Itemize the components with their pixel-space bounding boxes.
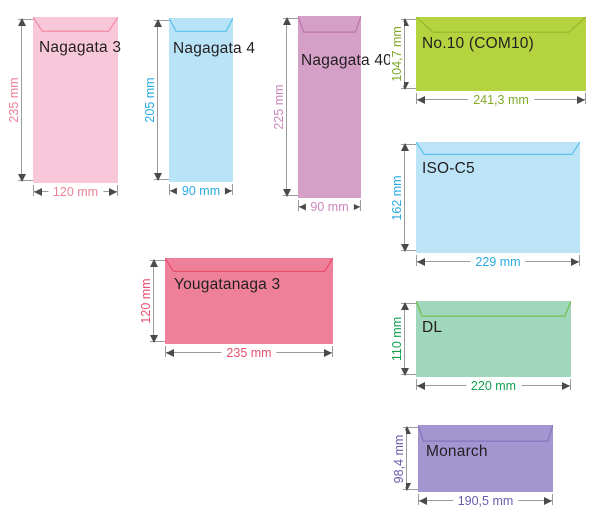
envelope-figure-nagagata-40: 225 mm Nagagata 40 90 mm (272, 16, 361, 216)
dimension-line (406, 428, 407, 489)
dimension-tick (232, 184, 233, 195)
height-dimension: 225 mm (272, 16, 298, 198)
width-dimension: 229 mm (416, 253, 580, 271)
arrow-up-icon (154, 19, 162, 27)
dimension-tick (332, 346, 333, 357)
width-dimension: 90 mm (298, 198, 361, 216)
dimension-tick (585, 93, 586, 104)
envelope-figure-monarch: 98,4 mm Monarch 190,5 mm (392, 425, 553, 510)
width-dimension: 120 mm (33, 183, 118, 201)
dimension-tick (570, 379, 571, 390)
arrow-up-icon (401, 143, 409, 151)
width-dimension-label: 220 mm (466, 379, 521, 393)
envelope-flap-icon (298, 16, 361, 33)
arrow-up-icon (18, 18, 26, 26)
envelope-nagagata-3: Nagagata 3 (33, 17, 118, 183)
envelope-flap-icon (165, 258, 333, 272)
arrow-down-icon (18, 174, 26, 182)
height-dimension-label: 205 mm (143, 73, 157, 126)
envelope-figure-yougatanaga-3: 120 mm Yougatanaga 3 235 mm (139, 258, 333, 362)
dimension-tick (552, 494, 553, 505)
width-dimension-label: 235 mm (221, 346, 276, 360)
dimension-tick (117, 185, 118, 196)
arrow-down-icon (150, 335, 158, 343)
arrow-down-icon (283, 189, 291, 197)
dimension-line (404, 145, 405, 250)
envelope-name: Nagagata 40 (301, 52, 392, 69)
arrow-down-icon (154, 173, 162, 181)
dimension-line (286, 19, 287, 195)
envelope-sizes-diagram: 235 mm Nagagata 3 120 mm 205 mm Nagagata… (0, 0, 602, 528)
width-dimension: 241,3 mm (416, 91, 586, 109)
arrow-down-icon (401, 368, 409, 376)
arrow-right-icon (224, 187, 232, 195)
arrow-left-icon (417, 96, 425, 104)
envelope-yougatanaga-3: Yougatanaga 3 (165, 258, 333, 344)
height-dimension-label: 110 mm (390, 313, 404, 365)
envelope-flap-icon (33, 17, 118, 32)
width-dimension-label: 90 mm (177, 184, 225, 198)
height-dimension-label: 225 mm (272, 80, 286, 133)
envelope-name: Monarch (426, 443, 488, 460)
dimension-line (404, 304, 405, 374)
envelope-name: Nagagata 3 (39, 39, 121, 56)
dimension-line (21, 20, 22, 180)
envelope-no10-com10: No.10 (COM10) (416, 17, 586, 91)
arrow-left-icon (417, 258, 425, 266)
arrow-left-icon (417, 382, 425, 390)
height-dimension-label: 98,4 mm (392, 430, 406, 487)
envelope-figure-no10-com10: 104,7 mm No.10 (COM10) 241,3 mm (390, 17, 586, 109)
arrow-up-icon (283, 17, 291, 25)
envelope-nagagata-4: Nagagata 4 (169, 18, 233, 182)
height-dimension-label: 235 mm (7, 73, 21, 126)
arrow-right-icon (577, 96, 585, 104)
arrow-down-icon (401, 244, 409, 252)
height-dimension: 235 mm (7, 17, 33, 183)
width-dimension: 90 mm (169, 182, 233, 200)
envelope-nagagata-40: Nagagata 40 (298, 16, 361, 198)
envelope-name: ISO-C5 (422, 160, 475, 177)
arrow-left-icon (166, 349, 174, 357)
envelope-figure-iso-c5: 162 mm ISO-C5 229 mm (390, 142, 580, 271)
envelope-flap-icon (416, 142, 580, 155)
arrow-right-icon (324, 349, 332, 357)
envelope-figure-nagagata-3: 235 mm Nagagata 3 120 mm (7, 17, 118, 201)
envelope-flap-icon (418, 425, 553, 442)
height-dimension: 98,4 mm (392, 425, 418, 492)
width-dimension: 235 mm (165, 344, 333, 362)
envelope-dl: DL (416, 301, 571, 377)
width-dimension-label: 90 mm (305, 200, 353, 214)
envelope-name: Yougatanaga 3 (174, 276, 280, 293)
width-dimension: 190,5 mm (418, 492, 553, 510)
height-dimension: 162 mm (390, 142, 416, 253)
height-dimension-label: 104,7 mm (390, 22, 404, 86)
envelope-name: Nagagata 4 (173, 40, 255, 57)
arrow-up-icon (150, 259, 158, 267)
dimension-tick (360, 200, 361, 211)
arrow-left-icon (34, 188, 42, 196)
arrow-right-icon (571, 258, 579, 266)
dimension-line (404, 20, 405, 88)
envelope-figure-nagagata-4: 205 mm Nagagata 4 90 mm (143, 18, 233, 200)
arrow-up-icon (401, 302, 409, 310)
arrow-right-icon (109, 188, 117, 196)
dimension-tick (579, 255, 580, 266)
envelope-iso-c5: ISO-C5 (416, 142, 580, 253)
dimension-line (153, 261, 154, 341)
arrow-left-icon (419, 497, 427, 505)
envelope-flap-icon (416, 17, 586, 33)
width-dimension-label: 120 mm (48, 185, 103, 199)
width-dimension-label: 190,5 mm (453, 494, 519, 508)
arrow-right-icon (544, 497, 552, 505)
height-dimension: 120 mm (139, 258, 165, 344)
height-dimension-label: 120 mm (139, 274, 153, 327)
height-dimension: 205 mm (143, 18, 169, 182)
envelope-name: No.10 (COM10) (422, 35, 534, 52)
height-dimension-label: 162 mm (390, 171, 404, 224)
envelope-name: DL (422, 319, 442, 336)
envelope-flap-icon (169, 18, 233, 32)
width-dimension: 220 mm (416, 377, 571, 395)
envelope-monarch: Monarch (418, 425, 553, 492)
envelope-flap-icon (416, 301, 571, 317)
width-dimension-label: 241,3 mm (468, 93, 534, 107)
height-dimension: 104,7 mm (390, 17, 416, 91)
arrow-right-icon (562, 382, 570, 390)
dimension-line (157, 21, 158, 179)
width-dimension-label: 229 mm (470, 255, 525, 269)
envelope-figure-dl: 110 mm DL 220 mm (390, 301, 571, 395)
height-dimension: 110 mm (390, 301, 416, 377)
